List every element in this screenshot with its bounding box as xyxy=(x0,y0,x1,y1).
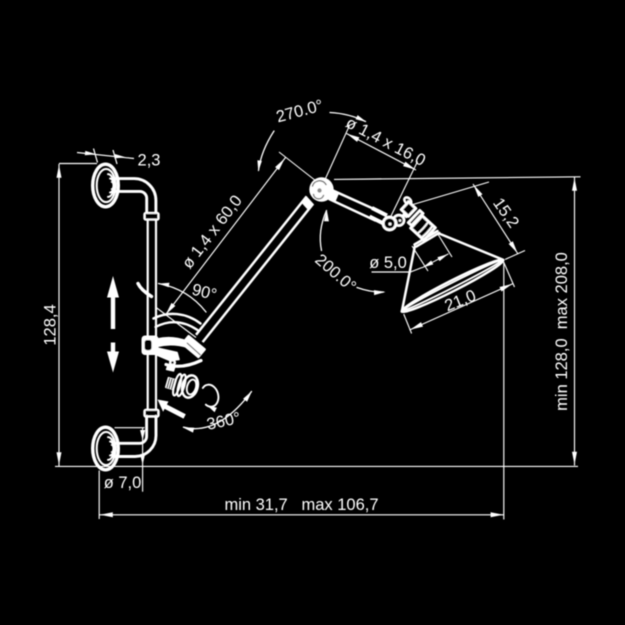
svg-text:ø 5,0: ø 5,0 xyxy=(369,254,407,272)
svg-text:min 31,7 max 106,7: min 31,7 max 106,7 xyxy=(224,496,378,514)
svg-text:ø 7,0: ø 7,0 xyxy=(104,474,142,492)
svg-text:128,4: 128,4 xyxy=(41,304,59,345)
svg-text:min 128,0 max 208,0: min 128,0 max 208,0 xyxy=(553,252,571,411)
svg-text:2,3: 2,3 xyxy=(138,151,161,169)
